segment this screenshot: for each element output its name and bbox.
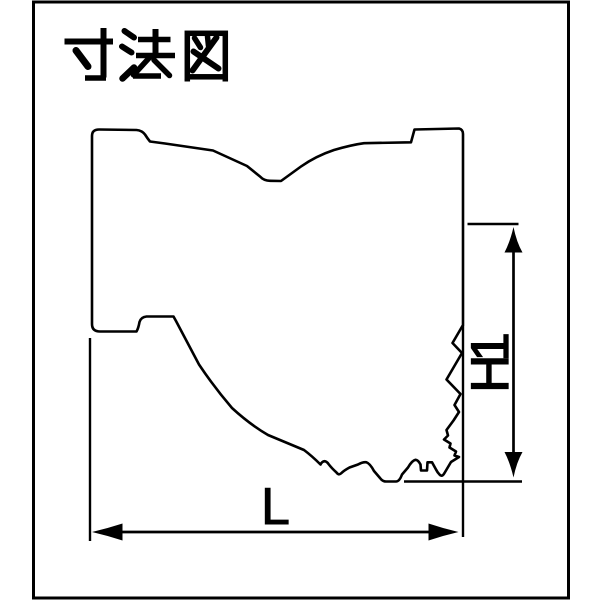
svg-text:H1: H1: [461, 335, 520, 393]
svg-text:L: L: [261, 478, 290, 536]
